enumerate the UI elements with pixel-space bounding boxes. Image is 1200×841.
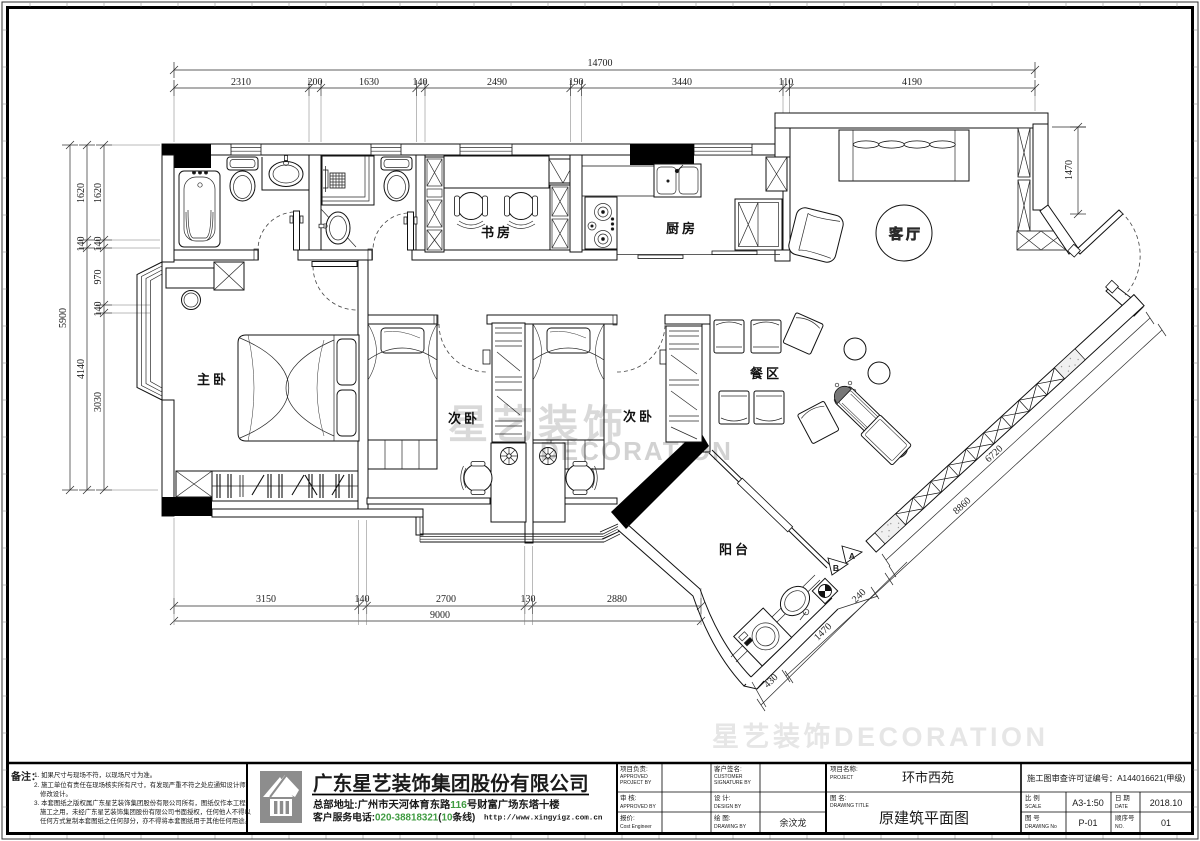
svg-text:厨房: 厨房 bbox=[666, 221, 698, 236]
svg-text:110: 110 bbox=[779, 77, 794, 88]
svg-text:项目名称:: 项目名称: bbox=[830, 764, 858, 773]
svg-text:1620: 1620 bbox=[93, 183, 104, 203]
svg-text:2490: 2490 bbox=[487, 77, 507, 88]
svg-text:图 号: 图 号 bbox=[1025, 814, 1040, 822]
svg-text:P-01: P-01 bbox=[1078, 818, 1097, 828]
svg-text:DRAWING TITLE: DRAWING TITLE bbox=[830, 803, 870, 809]
svg-text:130: 130 bbox=[521, 594, 536, 605]
svg-text:报价:: 报价: bbox=[620, 813, 635, 822]
svg-text:Cost Engineer: Cost Engineer bbox=[620, 824, 652, 830]
svg-text:SIGNATURE BY: SIGNATURE BY bbox=[714, 780, 752, 786]
svg-text:修改设计。: 修改设计。 bbox=[40, 789, 72, 798]
svg-text:DESIGN BY: DESIGN BY bbox=[714, 804, 742, 810]
svg-text:设 计:: 设 计: bbox=[714, 793, 731, 802]
svg-text:1. 如果尺寸与现场不符，以现场尺寸为准。: 1. 如果尺寸与现场不符，以现场尺寸为准。 bbox=[34, 770, 156, 779]
svg-text:餐区: 餐区 bbox=[749, 366, 782, 381]
svg-text:NO.: NO. bbox=[1115, 824, 1124, 830]
svg-text:星艺装饰DECORATION: 星艺装饰DECORATION bbox=[712, 722, 1049, 752]
svg-text:任何方式复制本套图纸之任何部分，亦不得将本套图纸用于其他任何: 任何方式复制本套图纸之任何部分，亦不得将本套图纸用于其他任何用途。 bbox=[40, 816, 251, 825]
svg-text:APPROVED BY: APPROVED BY bbox=[620, 804, 657, 810]
svg-text:广东星艺装饰集团股份有限公司: 广东星艺装饰集团股份有限公司 bbox=[313, 772, 589, 795]
svg-text:200: 200 bbox=[308, 77, 323, 88]
svg-text:DRAWING No: DRAWING No bbox=[1025, 824, 1057, 830]
svg-text:比 例: 比 例 bbox=[1025, 793, 1040, 802]
svg-text:2018.10: 2018.10 bbox=[1150, 798, 1183, 808]
svg-text:审 核:: 审 核: bbox=[620, 793, 637, 802]
svg-text:3150: 3150 bbox=[256, 594, 276, 605]
svg-text:日 期: 日 期 bbox=[1115, 794, 1130, 802]
svg-text:SCALE: SCALE bbox=[1025, 804, 1042, 810]
svg-text:140: 140 bbox=[413, 77, 428, 88]
svg-text:3440: 3440 bbox=[672, 77, 692, 88]
svg-text:施工之用，未经广东星艺装饰集团股份有限公司书面授权，任何他人: 施工之用，未经广东星艺装饰集团股份有限公司书面授权，任何他人不得以 bbox=[40, 807, 251, 816]
svg-text:1470: 1470 bbox=[1064, 160, 1075, 180]
svg-text:原建筑平面图: 原建筑平面图 bbox=[879, 810, 969, 827]
svg-text:140: 140 bbox=[93, 237, 104, 252]
svg-text:140: 140 bbox=[355, 594, 370, 605]
svg-text:2. 施工单位有责任在现场核实所有尺寸，有发现严重不符之处应: 2. 施工单位有责任在现场核实所有尺寸，有发现严重不符之处应通知设计师 bbox=[34, 780, 246, 789]
svg-text:9000: 9000 bbox=[430, 610, 450, 621]
svg-text:5900: 5900 bbox=[58, 308, 69, 328]
svg-text:图 名:: 图 名: bbox=[830, 793, 847, 802]
svg-text:阳台: 阳台 bbox=[719, 542, 751, 557]
svg-text:http://www.xingyigz.com.cn: http://www.xingyigz.com.cn bbox=[484, 815, 603, 823]
svg-text:客户签名:: 客户签名: bbox=[714, 764, 742, 773]
svg-text:2310: 2310 bbox=[231, 77, 251, 88]
svg-text:A3-1:50: A3-1:50 bbox=[1072, 798, 1104, 808]
svg-text:190: 190 bbox=[569, 77, 584, 88]
svg-text:2880: 2880 bbox=[607, 594, 627, 605]
svg-text:3. 本套图纸之版权属广东星艺装饰集团股份有限公司所有，图纸: 3. 本套图纸之版权属广东星艺装饰集团股份有限公司所有，图纸仅作本工程 bbox=[34, 798, 246, 807]
svg-text:余汶龙: 余汶龙 bbox=[779, 817, 806, 828]
svg-text:2700: 2700 bbox=[436, 594, 456, 605]
svg-text:书房: 书房 bbox=[481, 225, 513, 240]
svg-text:项目负责:: 项目负责: bbox=[620, 764, 648, 773]
svg-text:DATE: DATE bbox=[1115, 804, 1129, 810]
svg-text:140: 140 bbox=[93, 302, 104, 317]
svg-text:1620: 1620 bbox=[76, 183, 87, 203]
svg-text:3030: 3030 bbox=[93, 392, 104, 412]
svg-text:DECORATION: DECORATION bbox=[540, 436, 733, 466]
svg-text:A: A bbox=[849, 551, 855, 561]
svg-text:施工图审查许可证编号：A144016621(甲级): 施工图审查许可证编号：A144016621(甲级) bbox=[1027, 773, 1186, 783]
svg-text:客户服务电话:020-38818321(10条线): 客户服务电话:020-38818321(10条线) bbox=[312, 811, 475, 824]
svg-text:PROJECT: PROJECT bbox=[830, 775, 853, 781]
svg-text:140: 140 bbox=[76, 237, 87, 252]
svg-text:顺序号: 顺序号 bbox=[1115, 813, 1135, 822]
svg-text:DRAWING BY: DRAWING BY bbox=[714, 824, 747, 830]
svg-text:总部地址:广州市天河体育东路116号财富广场东塔十楼: 总部地址:广州市天河体育东路116号财富广场东塔十楼 bbox=[313, 798, 560, 811]
svg-text:绘 图:: 绘 图: bbox=[714, 813, 731, 822]
svg-text:970: 970 bbox=[93, 270, 104, 285]
svg-text:4140: 4140 bbox=[76, 359, 87, 379]
svg-text:PROJECT BY: PROJECT BY bbox=[620, 780, 652, 786]
svg-text:主卧: 主卧 bbox=[197, 372, 229, 387]
svg-text:1630: 1630 bbox=[359, 77, 379, 88]
svg-text:环市西苑: 环市西苑 bbox=[902, 770, 954, 785]
svg-text:B: B bbox=[833, 563, 839, 573]
svg-text:14700: 14700 bbox=[588, 58, 613, 69]
svg-text:01: 01 bbox=[1161, 818, 1171, 828]
svg-text:客厅: 客厅 bbox=[888, 226, 923, 242]
svg-text:4190: 4190 bbox=[902, 77, 922, 88]
